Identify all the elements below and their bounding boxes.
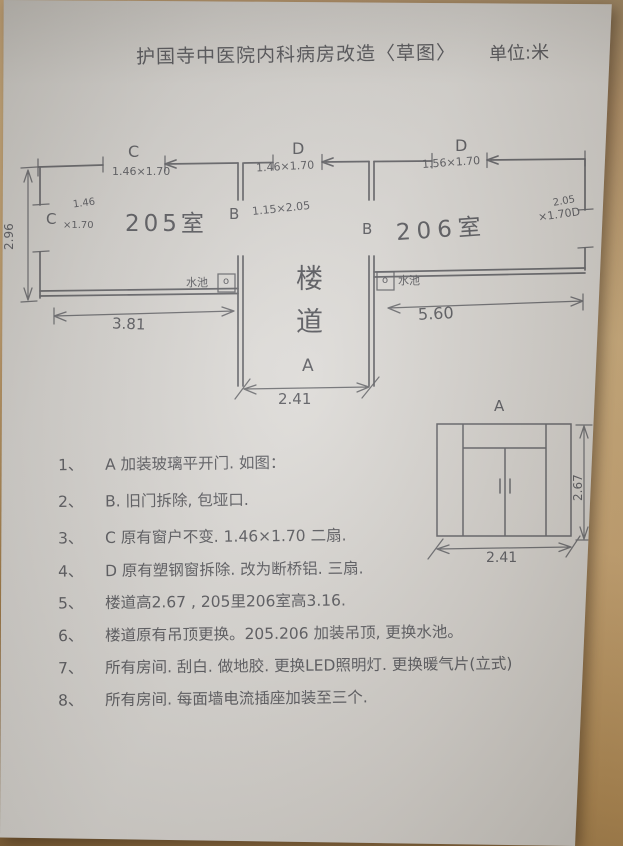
dim-room205-width: 3.81 [112,316,146,332]
room-205-label: 205室 [125,213,208,236]
dim-room206-width: 5.60 [418,305,454,323]
corridor-door-a-letter: A [302,358,314,375]
sink-right-label: 水池 [398,275,420,286]
note-row-6: 6、楼道原有吊顶更换。205.206 加装吊顶, 更换水池。 [58,620,463,646]
sink-left-mark: o [223,277,229,287]
note-text: A 加装玻璃平开门. 如图： [105,454,286,474]
note-number: 1、 [58,453,105,475]
note-row-2: 2、B. 旧门拆除, 包垭口. [58,488,249,512]
note-row-5: 5、楼道高2.67 , 205里206室高3.16. [58,588,346,613]
note-text: 所有房间. 刮白. 做地胶. 更换LED照明灯. 更换暖气片(立式) [105,655,513,677]
note-text: 楼道原有吊顶更换。205.206 加装吊顶, 更换水池。 [105,623,463,645]
note-text: 楼道高2.67 , 205里206室高3.16. [105,591,346,612]
detail-a-label: A [494,399,504,414]
sink-right-mark: o [382,276,388,286]
sink-left-label: 水池 [186,277,208,288]
note-text: B. 旧门拆除, 包垭口. [105,491,249,511]
note-number: 4、 [58,559,105,581]
note-number: 2、 [58,490,105,512]
corridor-label: 楼道 [293,264,320,350]
note-number: 3、 [58,526,105,548]
dim-corridor-width: 2.41 [278,392,311,407]
note-text: D 原有塑钢窗拆除. 改为断桥铝. 三扇. [105,559,364,580]
note-text: C 原有窗户不变. 1.46×1.70 二扇. [105,526,347,547]
note-number: 8、 [58,688,105,710]
note-row-4: 4、D 原有塑钢窗拆除. 改为断桥铝. 三扇. [58,556,364,581]
note-row-8: 8、所有房间. 每面墙电流插座加装至三个. [58,685,368,710]
note-number: 5、 [58,591,105,613]
door-b-left-letter: B [229,207,239,222]
note-text: 所有房间. 每面墙电流插座加装至三个. [105,688,368,709]
detail-height-dim: 2.67 [572,474,584,501]
note-row-3: 3、C 原有窗户不变. 1.46×1.70 二扇. [58,523,347,548]
dim-room-depth: 2.96 [3,223,15,250]
note-number: 6、 [58,624,105,646]
floor-plan-linework [0,0,623,846]
note-row-1: 1、A 加装玻璃平开门. 如图： [58,451,286,475]
window-d-right-letter: D [455,138,467,154]
window-c-top-letter: C [128,144,139,160]
door-b-right-letter: B [362,222,372,237]
room-206-label: 206室 [395,216,487,245]
paper-sheet: 护国寺中医院内科病房改造〈草图〉 单位:米 [0,0,623,846]
desk-surface: 护国寺中医院内科病房改造〈草图〉 单位:米 [0,0,623,846]
window-d-mid-size: 1.46×1.70 [256,159,315,173]
window-c-left-letter: C [46,212,56,227]
window-c-top-size: 1.46×1.70 [112,166,170,177]
note-number: 7、 [58,656,105,678]
window-d-mid-letter: D [292,141,304,157]
window-c-left-height: ×1.70 [63,221,94,231]
detail-width-dim: 2.41 [486,551,517,565]
